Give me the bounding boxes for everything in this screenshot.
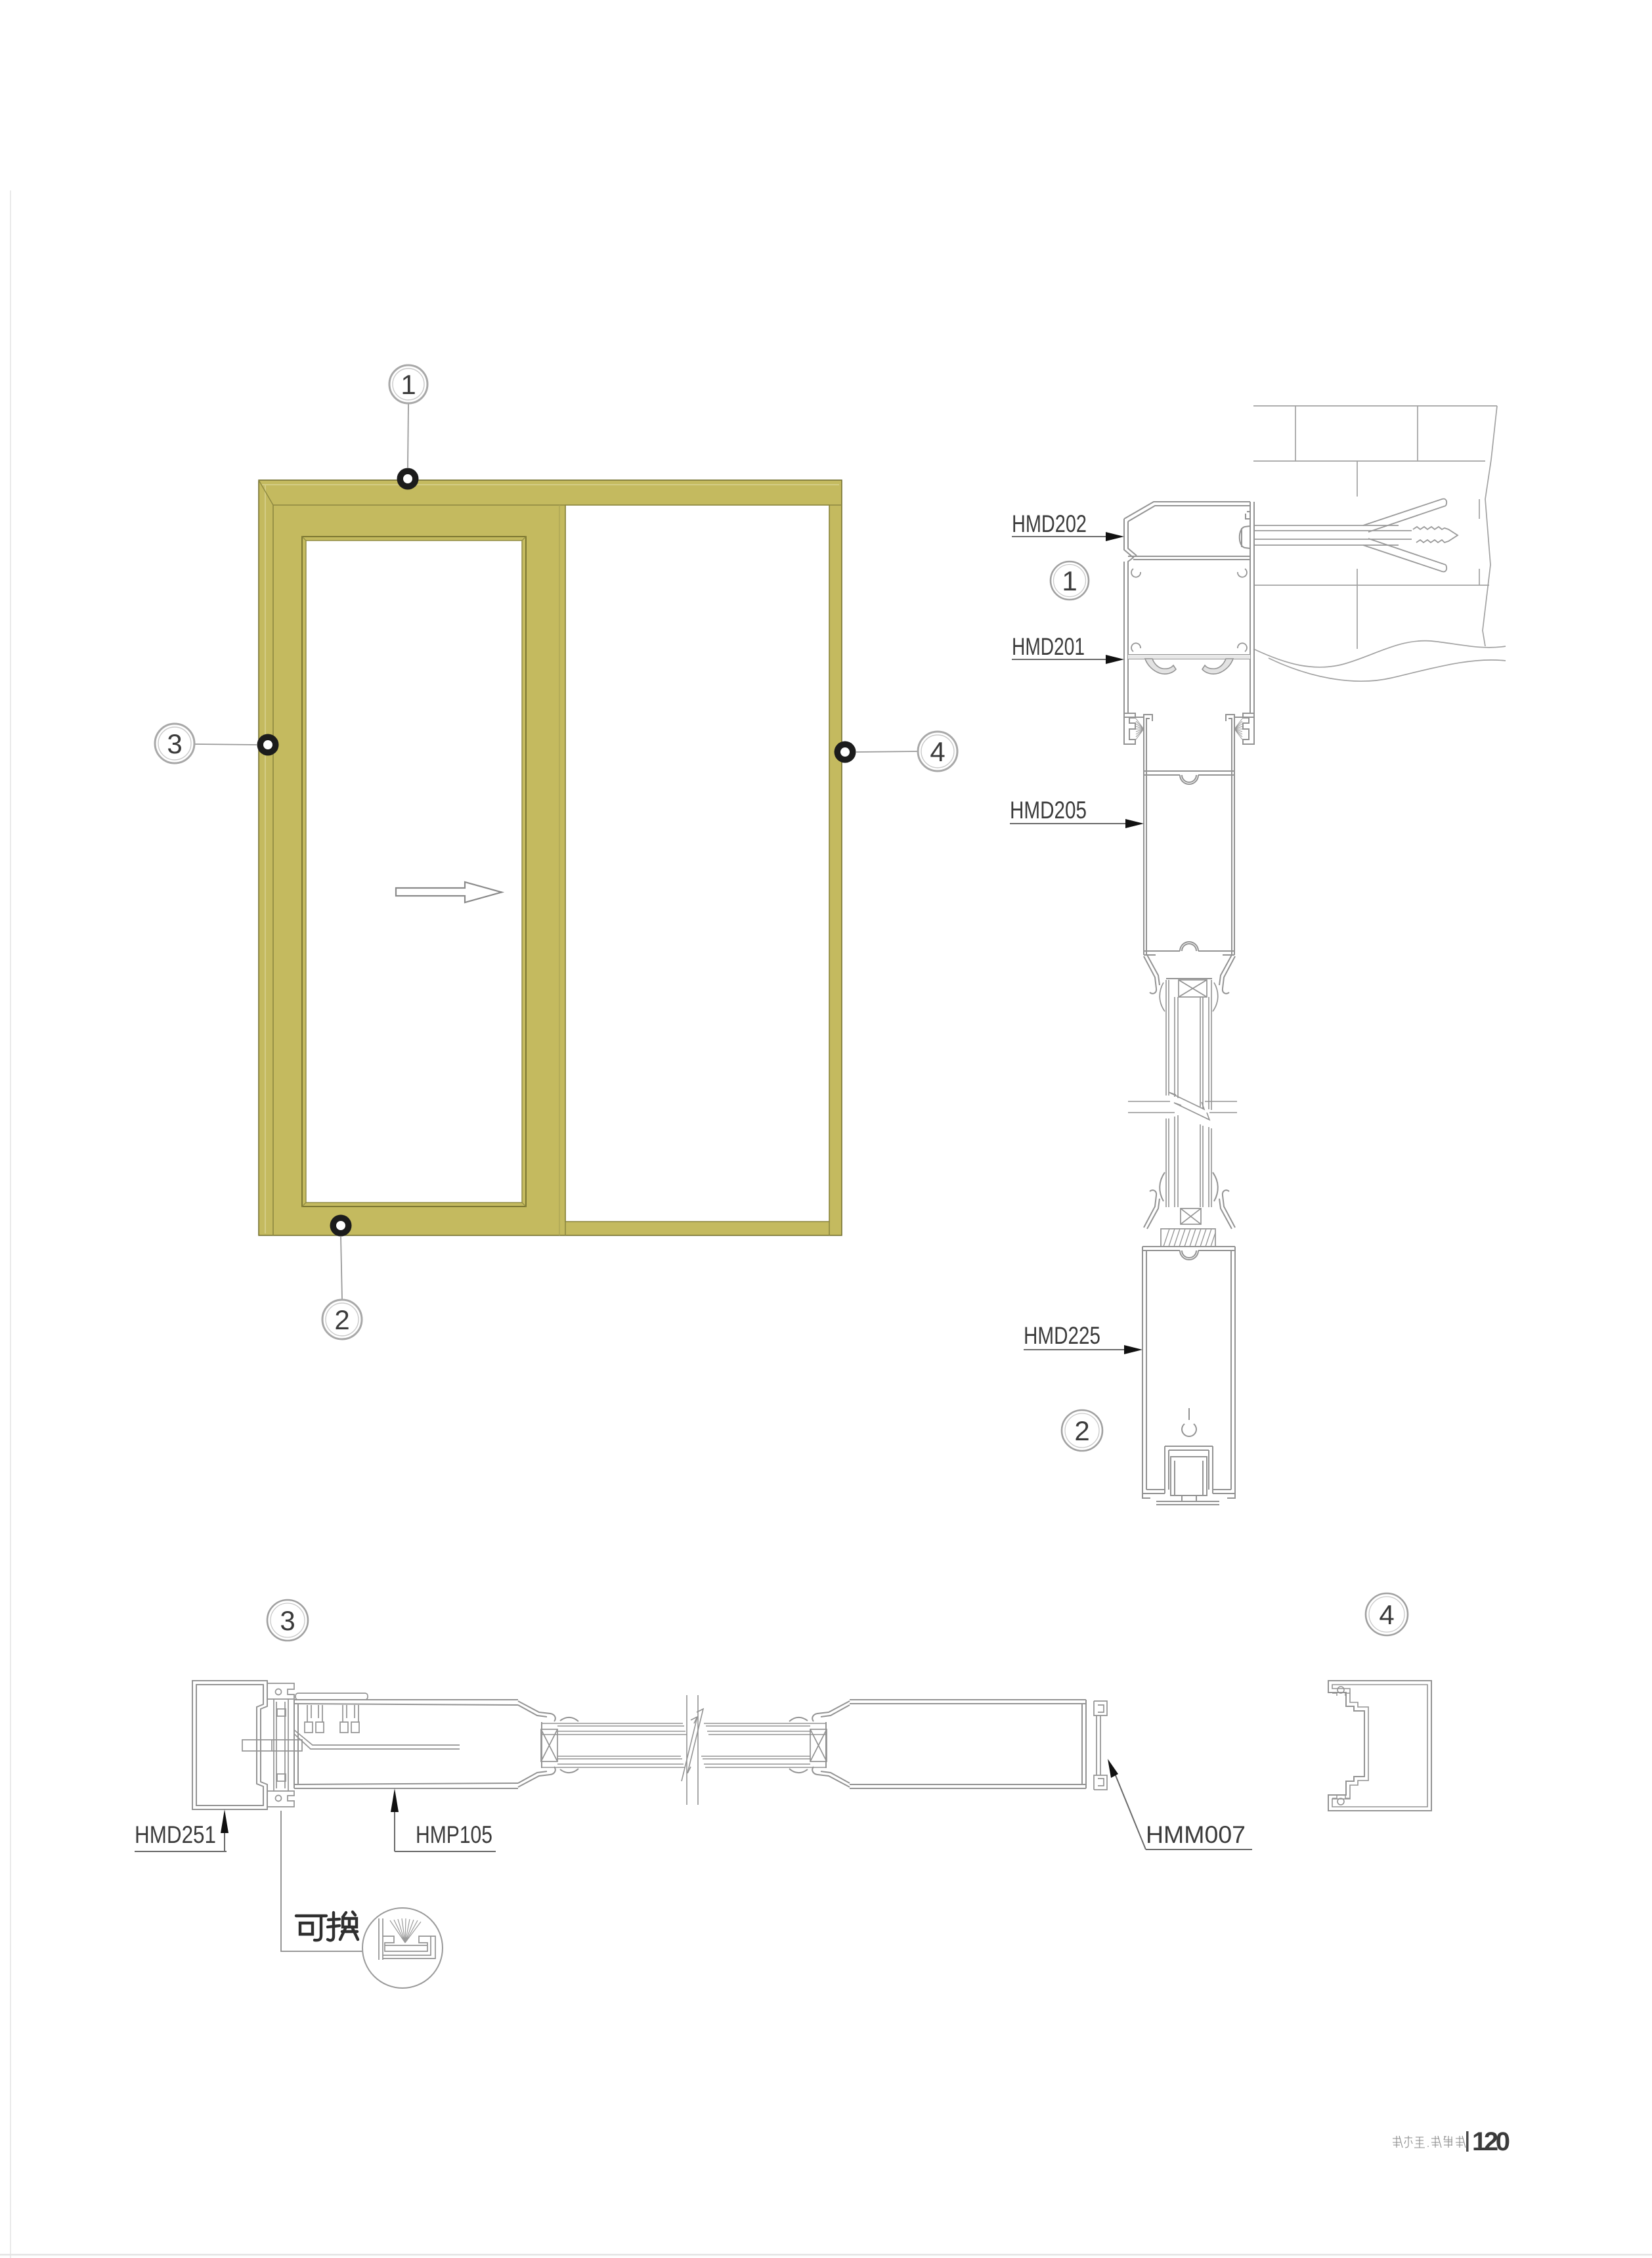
svg-text:HMD201: HMD201: [1012, 633, 1085, 660]
svg-text:4: 4: [1379, 1599, 1394, 1630]
svg-text:HMD205: HMD205: [1010, 797, 1087, 824]
svg-text:2: 2: [334, 1304, 349, 1335]
svg-text:120: 120: [1472, 2127, 1510, 2156]
svg-text:1: 1: [1062, 565, 1077, 596]
svg-text:2: 2: [1074, 1415, 1089, 1446]
svg-text:HMP105: HMP105: [416, 1821, 492, 1848]
svg-text:4: 4: [930, 736, 945, 767]
svg-text:3: 3: [280, 1605, 295, 1636]
svg-text:HMM007: HMM007: [1146, 1821, 1246, 1848]
svg-text:HMD251: HMD251: [135, 1821, 216, 1848]
svg-text:HMD225: HMD225: [1024, 1322, 1100, 1349]
svg-text:3: 3: [167, 728, 182, 759]
svg-text:1: 1: [401, 369, 416, 400]
svg-text:HMD202: HMD202: [1012, 510, 1087, 537]
